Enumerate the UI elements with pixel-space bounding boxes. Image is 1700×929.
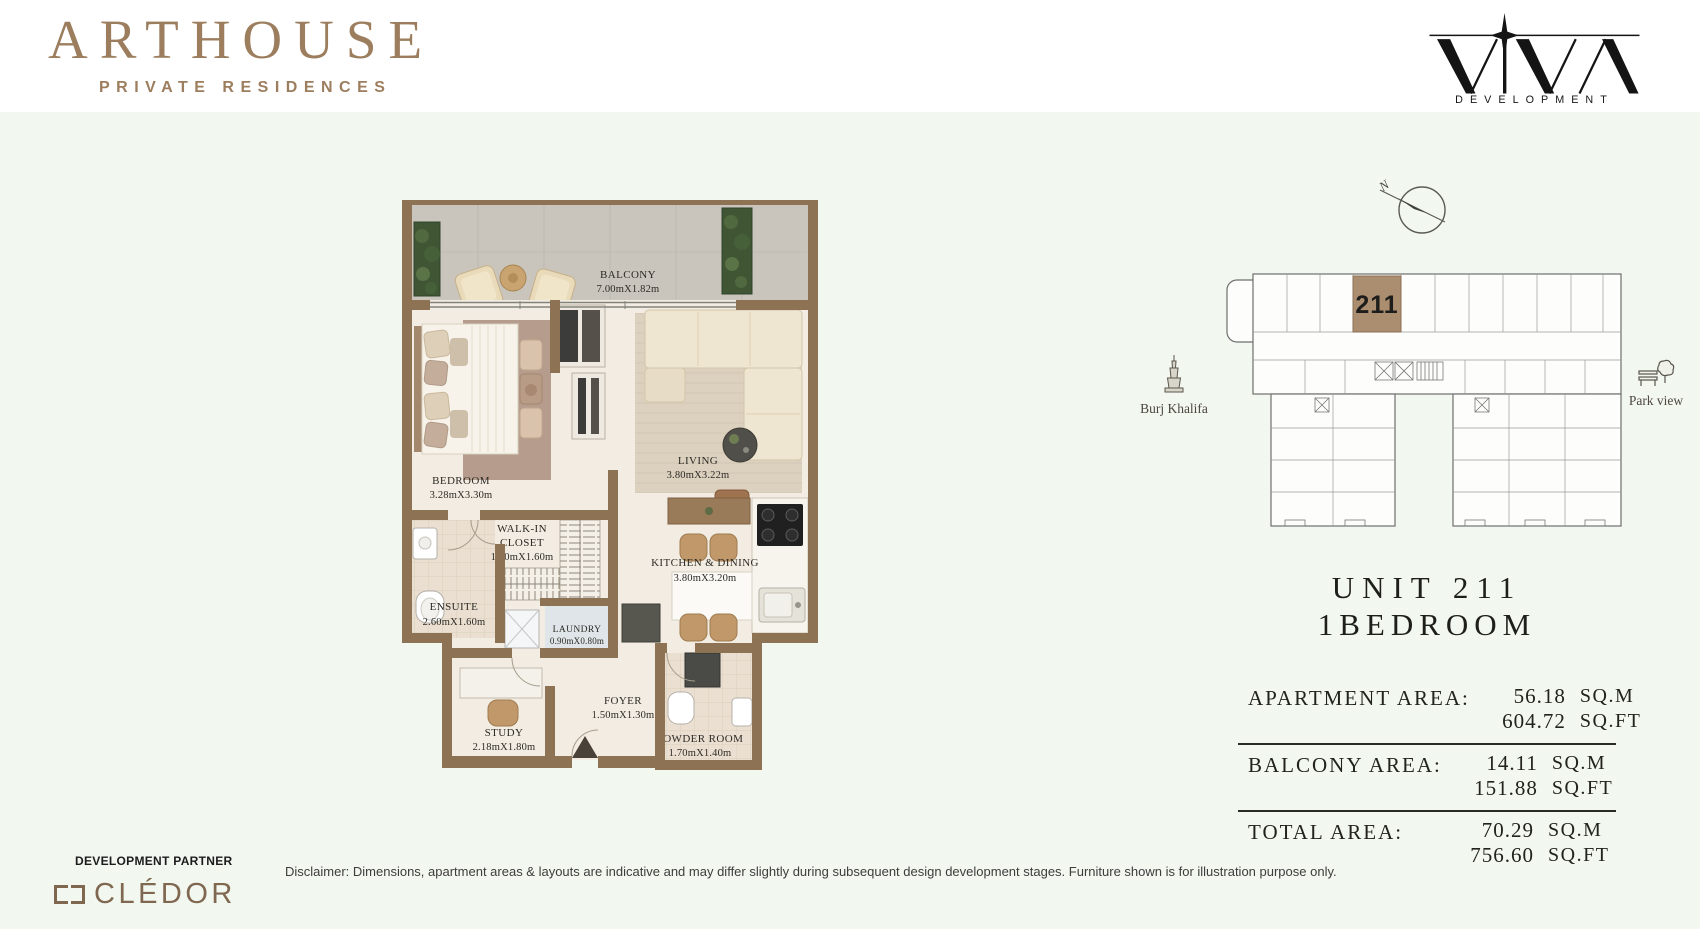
area-sqm-unit: SQ.M bbox=[1580, 684, 1634, 709]
kitchen-sink-icon bbox=[759, 588, 805, 622]
bed-headboard bbox=[414, 326, 422, 452]
balcony-table-icon bbox=[500, 265, 526, 291]
unit-title: UNIT 211 1BEDROOM bbox=[1238, 570, 1616, 643]
area-label: APARTMENT AREA: bbox=[1248, 684, 1470, 734]
viva-v1-thin bbox=[1471, 39, 1497, 93]
viva-development-logo: DEVELOPMENT bbox=[1422, 4, 1647, 108]
planter-left-icon bbox=[414, 222, 440, 296]
kitchen-label: KITCHEN & DINING bbox=[651, 557, 759, 569]
desk-chair bbox=[488, 700, 518, 726]
area-sqm-value: 70.29 bbox=[1438, 818, 1534, 843]
cledor-bracket-right-icon bbox=[71, 885, 85, 904]
powder-room: POWDER ROOM 1.70mX1.40m bbox=[657, 653, 752, 760]
bedroom-label: BEDROOM bbox=[432, 475, 490, 487]
coffee-table-icon bbox=[723, 428, 757, 462]
area-sqft-unit: SQ.FT bbox=[1580, 709, 1641, 734]
area-sqm-unit: SQ.M bbox=[1548, 818, 1602, 843]
living-room: LIVING 3.80mX3.22m bbox=[635, 310, 802, 524]
compass-north-label: N bbox=[1375, 176, 1393, 195]
powder-label: POWDER ROOM bbox=[657, 733, 744, 745]
viva-v2-thick bbox=[1516, 39, 1554, 93]
kitchen-dims: 3.80mX3.20m bbox=[674, 573, 737, 584]
walkin-label-1: WALK-IN bbox=[497, 523, 547, 535]
compass-icon: N bbox=[1372, 174, 1456, 240]
area-sqft-value: 151.88 bbox=[1442, 776, 1538, 801]
area-sqft-unit: SQ.FT bbox=[1552, 776, 1613, 801]
area-row-balcony: BALCONY AREA: 14.11 SQ.M 151.88 SQ.FT bbox=[1238, 743, 1616, 810]
powder-sink-icon bbox=[732, 698, 752, 726]
burj-khalifa-label: Burj Khalifa bbox=[1126, 401, 1222, 417]
header-band: ARTHOUSE PRIVATE RESIDENCES DEVELOPMENT bbox=[0, 0, 1700, 112]
balcony-label: BALCONY bbox=[600, 269, 656, 281]
disclaimer-text: Disclaimer: Dimensions, apartment areas … bbox=[285, 864, 1530, 879]
unit-title-line2: 1BEDROOM bbox=[1238, 607, 1616, 643]
bedroom-dims: 3.28mX3.30m bbox=[430, 490, 493, 501]
floor-plan: BALCONY 7.00mX1.82m bbox=[400, 198, 820, 773]
area-table: APARTMENT AREA: 56.18 SQ.M 604.72 SQ.FT … bbox=[1238, 678, 1616, 877]
foyer-label: FOYER bbox=[604, 695, 642, 707]
area-sqm-value: 56.18 bbox=[1470, 684, 1566, 709]
study-dims: 2.18mX1.80m bbox=[473, 742, 536, 753]
viva-a-thin bbox=[1580, 39, 1606, 93]
key-plan: 211 bbox=[1225, 268, 1625, 534]
viva-a-thick bbox=[1602, 39, 1639, 93]
area-label: BALCONY AREA: bbox=[1248, 751, 1442, 801]
viva-i-bar bbox=[1503, 39, 1506, 93]
sink-icon bbox=[413, 528, 437, 559]
ensuite-dims: 2.60mX1.60m bbox=[423, 617, 486, 628]
viva-v2-thin bbox=[1550, 39, 1576, 93]
powder-dims: 1.70mX1.40m bbox=[669, 748, 732, 759]
park-view-icon bbox=[1636, 358, 1676, 390]
area-sqm-unit: SQ.M bbox=[1552, 751, 1606, 776]
study-label: STUDY bbox=[485, 727, 524, 739]
cledor-bracket-left-icon bbox=[54, 885, 68, 904]
arthouse-tagline: PRIVATE RESIDENCES bbox=[99, 79, 391, 97]
powder-toilet-icon bbox=[668, 692, 694, 724]
ensuite: ENSUITE 2.60mX1.60m bbox=[412, 520, 495, 638]
ensuite-label: ENSUITE bbox=[430, 601, 479, 613]
laundry-label: LAUNDRY bbox=[553, 625, 602, 635]
viva-v1-thick bbox=[1437, 39, 1475, 93]
area-sqm-value: 14.11 bbox=[1442, 751, 1538, 776]
burj-khalifa-icon bbox=[1159, 354, 1189, 398]
brochure-page: ARTHOUSE PRIVATE RESIDENCES DEVELOPMENT bbox=[0, 0, 1700, 929]
area-row-apartment: APARTMENT AREA: 56.18 SQ.M 604.72 SQ.FT bbox=[1238, 678, 1616, 743]
planter-right-icon bbox=[722, 208, 752, 294]
walk-in-closet: WALK-IN CLOSET 1.60mX1.60m bbox=[491, 520, 600, 600]
viva-development-word: DEVELOPMENT bbox=[1455, 94, 1614, 106]
keyplan-unit-number: 211 bbox=[1355, 291, 1398, 319]
area-sqft-value: 604.72 bbox=[1470, 709, 1566, 734]
fridge-icon bbox=[622, 604, 660, 642]
powder-vanity bbox=[685, 653, 720, 687]
landmark-park-view: Park view bbox=[1610, 358, 1700, 409]
park-view-label: Park view bbox=[1610, 393, 1700, 409]
cooktop-icon bbox=[757, 504, 803, 546]
bed-bench bbox=[520, 340, 542, 438]
desk bbox=[460, 668, 542, 698]
laundry: LAUNDRY 0.90mX0.80m bbox=[545, 606, 608, 648]
area-sqft-unit: SQ.FT bbox=[1548, 843, 1609, 868]
area-label: TOTAL AREA: bbox=[1248, 818, 1403, 868]
landmark-burj-khalifa: Burj Khalifa bbox=[1126, 354, 1222, 417]
laundry-dims: 0.90mX0.80m bbox=[550, 636, 604, 646]
walkin-label-2: CLOSET bbox=[500, 537, 544, 549]
foyer-dims: 1.50mX1.30m bbox=[592, 710, 655, 721]
arthouse-logo: ARTHOUSE bbox=[48, 8, 434, 71]
shower-icon bbox=[505, 610, 539, 648]
cledor-wordmark: CLÉDOR bbox=[94, 878, 236, 911]
development-partner-label: DEVELOPMENT PARTNER bbox=[75, 854, 233, 868]
living-dims: 3.80mX3.22m bbox=[667, 470, 730, 481]
cledor-logo: CLÉDOR bbox=[54, 878, 236, 911]
unit-title-line1: UNIT 211 bbox=[1238, 570, 1616, 606]
balcony-dims: 7.00mX1.82m bbox=[597, 284, 660, 295]
living-label: LIVING bbox=[678, 455, 718, 467]
